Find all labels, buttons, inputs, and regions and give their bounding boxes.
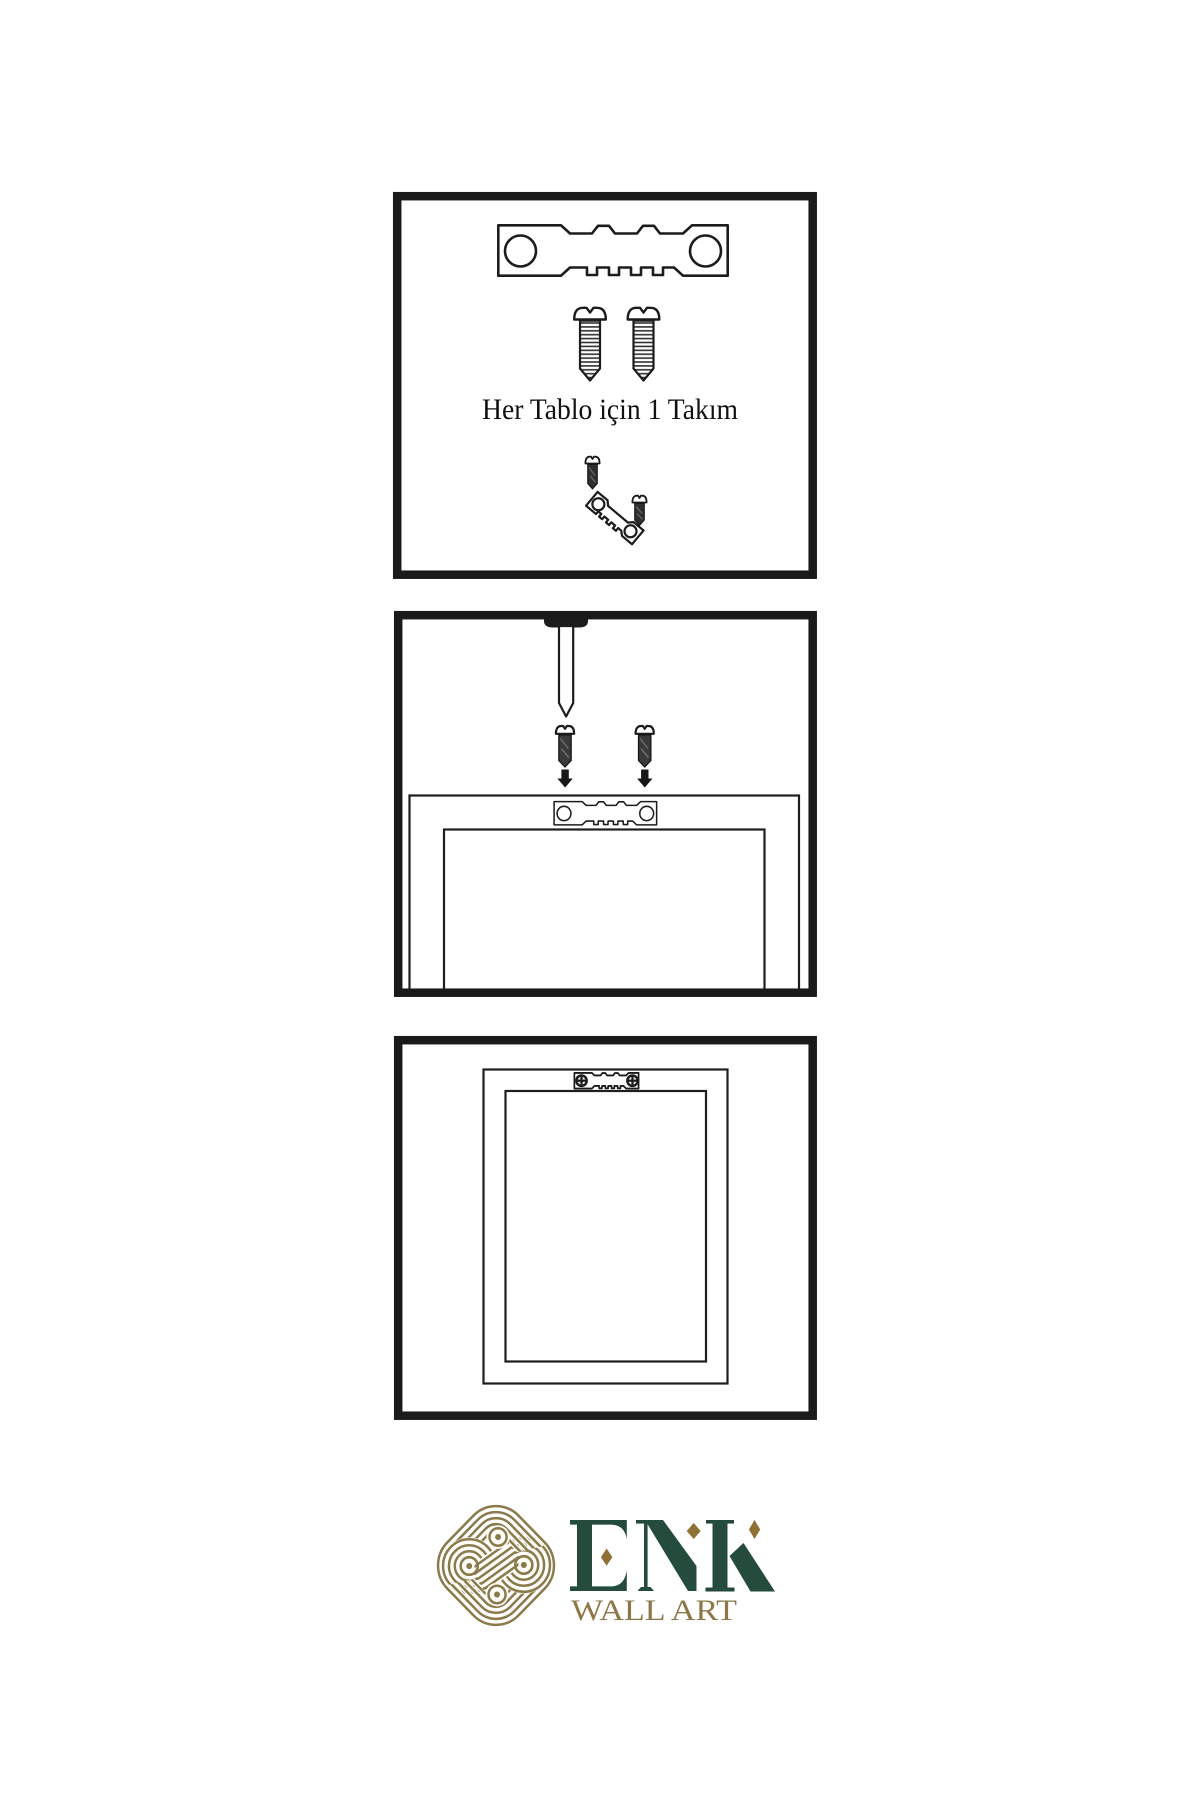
svg-text:WALL ART: WALL ART xyxy=(571,1594,737,1627)
svg-text:Her Tablo için 1 Takım: Her Tablo için 1 Takım xyxy=(482,393,738,426)
